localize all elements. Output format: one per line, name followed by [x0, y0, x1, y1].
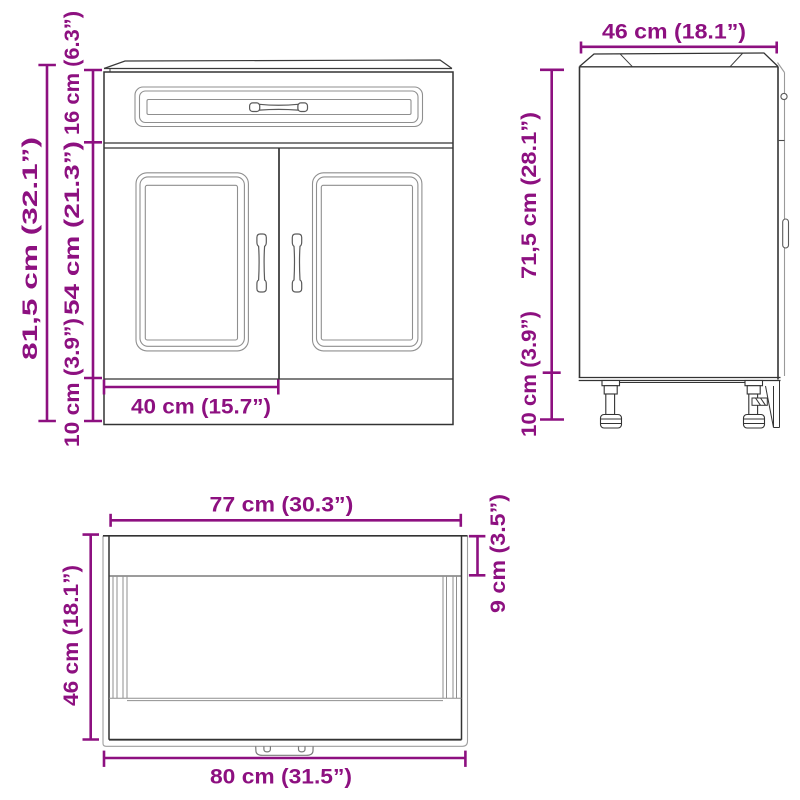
- svg-text:40 cm (15.7”): 40 cm (15.7”): [131, 396, 271, 419]
- svg-text:10 cm (3.9”): 10 cm (3.9”): [518, 311, 541, 437]
- svg-text:16 cm (6.3”): 16 cm (6.3”): [61, 11, 84, 135]
- svg-text:54 cm (21.3”): 54 cm (21.3”): [61, 141, 84, 315]
- svg-text:46 cm (18.1”): 46 cm (18.1”): [60, 565, 83, 706]
- svg-text:80 cm (31.5”): 80 cm (31.5”): [210, 766, 352, 789]
- svg-text:77 cm (30.3”): 77 cm (30.3”): [210, 494, 354, 517]
- svg-text:9 cm (3.5”): 9 cm (3.5”): [487, 494, 510, 613]
- svg-text:71,5 cm (28.1”): 71,5 cm (28.1”): [518, 112, 541, 279]
- svg-text:46 cm (18.1”): 46 cm (18.1”): [602, 21, 746, 44]
- svg-text:81,5 cm (32.1”): 81,5 cm (32.1”): [19, 137, 42, 360]
- svg-text:10 cm (3.9”): 10 cm (3.9”): [61, 318, 84, 447]
